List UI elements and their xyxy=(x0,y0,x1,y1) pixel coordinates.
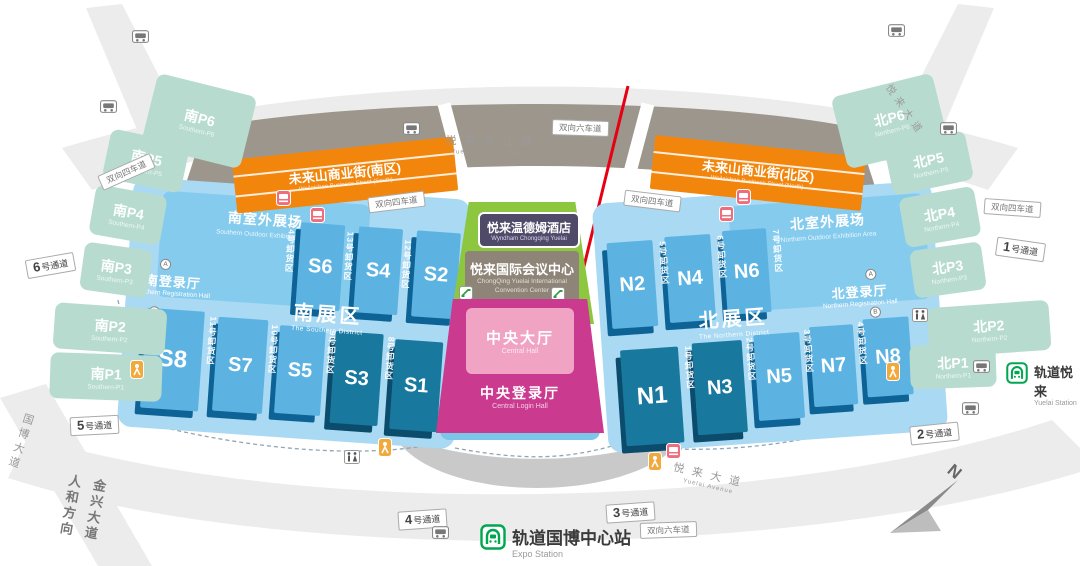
bus-icon xyxy=(962,402,979,415)
south-exhibition-zone: 南室外展场 Southern Outdoor Exhibition Area S… xyxy=(117,177,472,450)
shuttle-stop-icon xyxy=(276,190,291,206)
hall-N5: N5 xyxy=(753,332,805,421)
shuttle-stop-icon xyxy=(719,206,734,222)
lane-label-six: 双向六车道 xyxy=(552,119,609,137)
bus-icon xyxy=(132,30,149,43)
entrance-gate-icon xyxy=(130,360,144,379)
restroom-icon xyxy=(912,308,928,322)
bus-icon xyxy=(888,24,905,37)
south-district-label: 南展区 The Southern District xyxy=(272,295,384,339)
entrance-gate-icon xyxy=(886,362,900,381)
bus-icon xyxy=(940,122,957,135)
hall-S5: S5 xyxy=(274,325,326,416)
expo-map: { "central": { "hotel": {"zh": "悦来温德姆酒店"… xyxy=(0,0,1080,566)
central-login-hall: 中央登录厅 Central Login Hall xyxy=(436,383,604,410)
metro-icon xyxy=(1006,362,1028,384)
bus-icon xyxy=(432,526,449,539)
parking-south-p1: 南P1Southern-P1 xyxy=(49,352,163,402)
north-district-label: 北展区 The Northern District xyxy=(677,299,789,343)
bus-icon xyxy=(973,360,990,373)
yuelai-station: 轨道悦来 Yuelai Station xyxy=(1006,362,1080,407)
bus-icon xyxy=(100,100,117,113)
entrance-gate-icon xyxy=(648,452,662,471)
passage-5: 5号通道 xyxy=(70,415,120,437)
central-hall-complex: 中央大厅 Central Hall 中央登录厅 Central Login Ha… xyxy=(436,299,604,433)
hall-S1: S1 xyxy=(389,339,443,432)
north-exhibition-zone: 北室外展场 Northern Outdoor Exhibition Area N… xyxy=(592,180,949,453)
hall-N2: N2 xyxy=(606,240,658,329)
passage-3: 3号通道 xyxy=(605,501,655,523)
shuttle-stop-icon xyxy=(310,207,325,223)
expo-station: 轨道国博中心站 Expo Station xyxy=(480,524,631,559)
lane-label-six: 双向六车道 xyxy=(640,521,697,539)
hall-N3: N3 xyxy=(692,340,748,435)
wyndham-hotel: 悦来温德姆酒店 Wyndham Chongqing Yuelai xyxy=(478,212,580,248)
north-outdoor-label-zh: 北室外展场 xyxy=(789,209,865,234)
hall-S7: S7 xyxy=(212,317,268,414)
restroom-icon xyxy=(344,450,360,464)
escalator-icon xyxy=(551,287,565,301)
central-hall: 中央大厅 Central Hall xyxy=(466,308,574,374)
metro-icon xyxy=(480,524,506,550)
shuttle-stop-icon xyxy=(736,189,751,205)
hall-N1: N1 xyxy=(620,347,685,447)
shuttle-stop-icon xyxy=(666,443,681,459)
escalator-icon xyxy=(459,286,473,300)
bus-icon xyxy=(403,122,420,135)
parking-south-p2: 南P2Southern-P2 xyxy=(53,302,168,356)
parking-north-p3: 北P3Northern-P3 xyxy=(909,241,987,299)
parking-south-p3: 南P3Southern-P3 xyxy=(79,242,153,299)
entrance-gate-icon xyxy=(378,438,392,457)
